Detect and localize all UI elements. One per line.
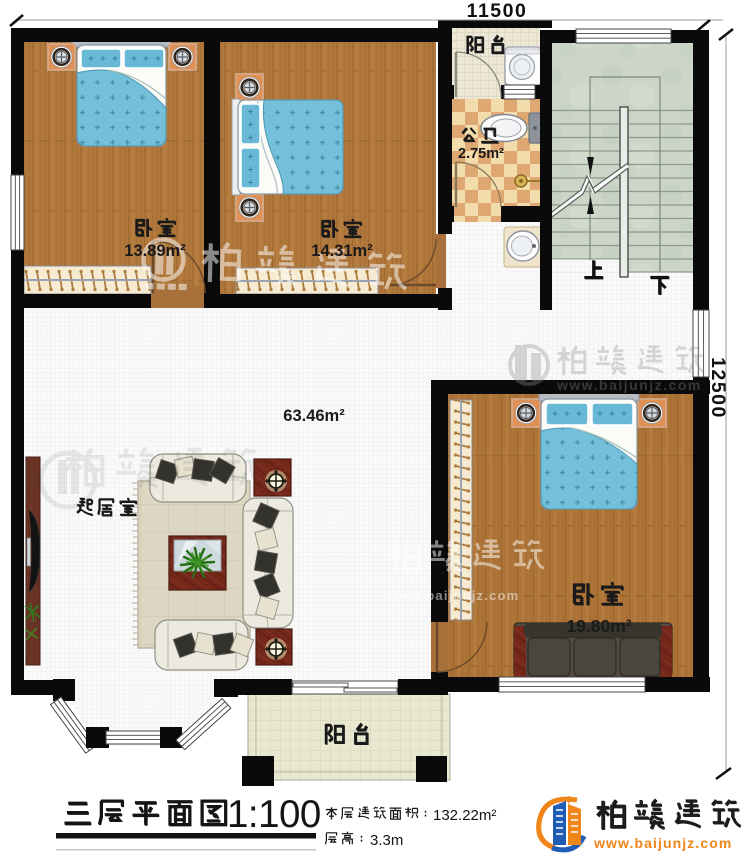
svg-text:3.3m: 3.3m	[370, 832, 403, 849]
svg-text:63.46m²: 63.46m²	[283, 407, 345, 425]
svg-text:14.31m²: 14.31m²	[311, 242, 373, 260]
svg-text:www.baijunjz.com: www.baijunjz.com	[387, 588, 519, 603]
svg-text:1:100: 1:100	[227, 793, 321, 836]
svg-text:19.80m²: 19.80m²	[566, 616, 631, 636]
svg-text:132.22m²: 132.22m²	[433, 807, 496, 824]
svg-text:2.75m²: 2.75m²	[458, 146, 504, 162]
svg-text:12500: 12500	[707, 357, 729, 419]
svg-text:11500: 11500	[467, 0, 528, 22]
svg-text:www.baijunjz.com: www.baijunjz.com	[593, 835, 732, 851]
svg-text:www.baijunjz.com: www.baijunjz.com	[556, 377, 702, 393]
svg-text:13.89m²: 13.89m²	[124, 242, 186, 260]
